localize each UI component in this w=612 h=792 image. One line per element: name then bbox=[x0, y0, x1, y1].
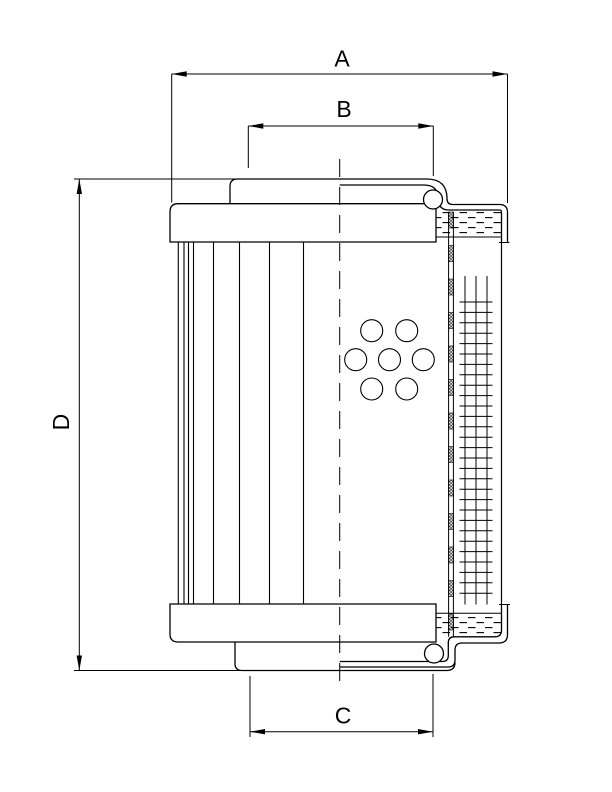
paper-background bbox=[0, 0, 612, 792]
dimension-b-label: B bbox=[336, 96, 351, 122]
filter-element-technical-drawing: A B C D bbox=[0, 0, 612, 792]
dimension-c-label: C bbox=[335, 703, 352, 729]
dimension-d-label: D bbox=[48, 414, 74, 431]
potting-top bbox=[437, 212, 502, 238]
seal-ball-bottom-icon bbox=[425, 644, 444, 663]
seal-ball-top-icon bbox=[424, 190, 443, 209]
potting-bottom bbox=[437, 613, 502, 637]
dimension-a-label: A bbox=[334, 46, 350, 72]
drawing-page: A B C D bbox=[0, 0, 612, 792]
